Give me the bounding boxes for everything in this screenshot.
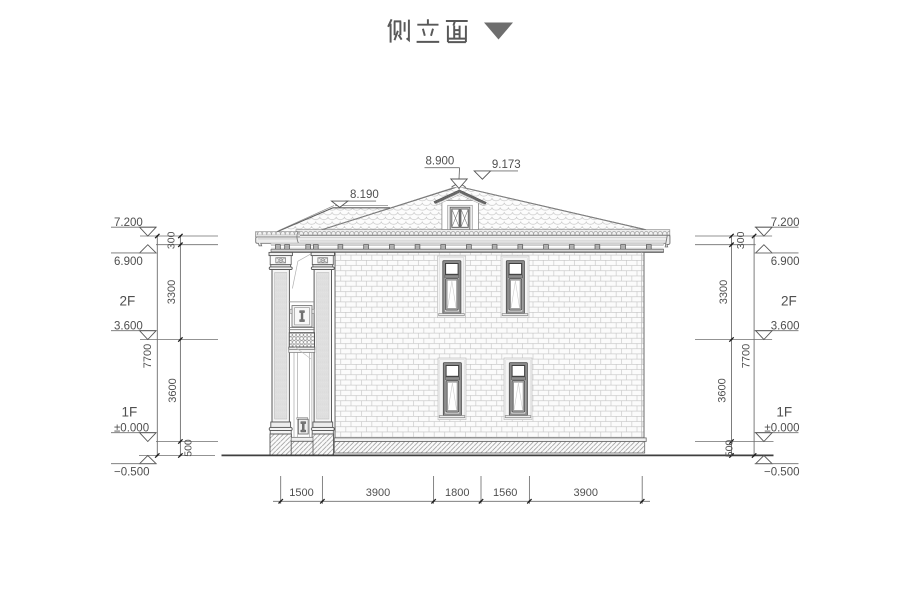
svg-text:7700: 7700 [741, 344, 753, 368]
svg-text:2F: 2F [120, 294, 136, 309]
svg-text:7700: 7700 [142, 344, 154, 368]
svg-text:300: 300 [166, 231, 178, 249]
svg-text:1F: 1F [122, 405, 138, 420]
svg-text:2F: 2F [781, 294, 797, 309]
svg-text:1500: 1500 [289, 487, 313, 499]
svg-text:8.900: 8.900 [426, 156, 455, 168]
svg-text:500: 500 [724, 440, 736, 458]
svg-text:6.900: 6.900 [114, 256, 143, 268]
svg-text:3900: 3900 [366, 487, 390, 499]
svg-text:8.190: 8.190 [350, 189, 379, 201]
svg-text:1F: 1F [776, 405, 792, 420]
svg-text:3300: 3300 [718, 280, 730, 304]
svg-text:−0.500: −0.500 [114, 467, 150, 479]
svg-text:1560: 1560 [493, 487, 517, 499]
svg-text:9.173: 9.173 [492, 159, 521, 171]
svg-text:3600: 3600 [167, 378, 179, 402]
svg-text:6.900: 6.900 [771, 256, 800, 268]
svg-text:1800: 1800 [445, 487, 469, 499]
svg-text:3300: 3300 [166, 280, 178, 304]
svg-text:3900: 3900 [574, 487, 598, 499]
svg-text:3600: 3600 [716, 378, 728, 402]
svg-text:300: 300 [735, 231, 747, 249]
svg-text:−0.500: −0.500 [764, 467, 800, 479]
svg-text:500: 500 [183, 439, 195, 457]
